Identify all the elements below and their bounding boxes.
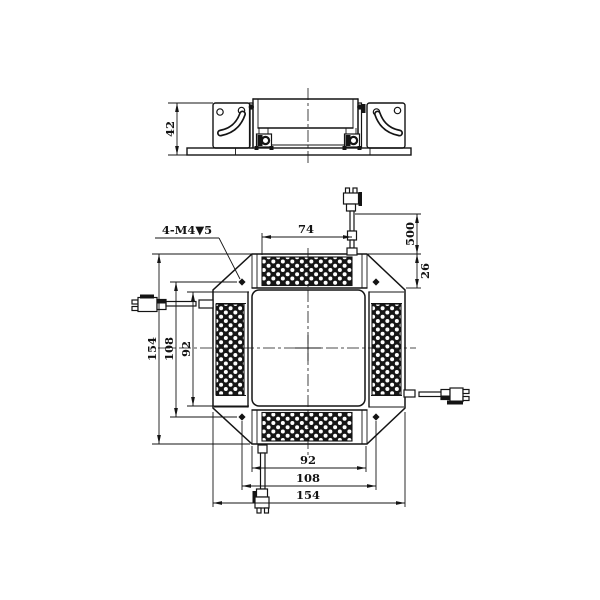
side-view-left-clip [255, 128, 274, 150]
screw-dot-left [249, 104, 254, 109]
cable-connector-top [344, 188, 363, 255]
dimension-top-width: 74 [262, 222, 352, 255]
dim-108-bottom-label: 108 [296, 471, 320, 485]
cable-connector-left [132, 295, 213, 312]
dim-154-bottom-label: 154 [296, 488, 320, 502]
dim-26-label: 26 [418, 263, 432, 279]
top-led-strip [252, 254, 367, 288]
dim-42-label: 42 [163, 121, 177, 137]
left-led-array [216, 304, 244, 395]
corner-screw-holes [238, 278, 379, 420]
side-view-left-bracket [213, 103, 250, 148]
dim-74-label: 74 [298, 222, 314, 236]
dimension-bottom-inner: 92 [252, 446, 366, 472]
dim-108-left-label: 108 [162, 337, 176, 361]
front-view: 4-M4▼5 74 500 26 [132, 188, 469, 513]
dim-154-left-label: 154 [145, 337, 159, 361]
right-led-array [372, 304, 401, 395]
side-view-base-plate [187, 148, 411, 155]
cable-connector-right [404, 388, 469, 405]
dim-500-label: 500 [403, 222, 417, 246]
left-led-strip [214, 292, 248, 407]
bottom-led-array [262, 413, 352, 442]
dimension-side-height: 42 [163, 103, 213, 155]
side-view: 42 [163, 88, 411, 165]
dim-92-bottom-label: 92 [300, 453, 316, 467]
side-view-right-bracket [367, 103, 405, 148]
dim-92-left-label: 92 [179, 341, 193, 357]
engineering-drawing-canvas: 42 [0, 0, 600, 600]
dimension-corner-offset: 26 [406, 254, 432, 288]
thread-callout-label: 4-M4▼5 [162, 223, 212, 237]
dimension-cable-length: 500 [355, 214, 421, 254]
thread-callout: 4-M4▼5 [155, 223, 240, 279]
led-panel-drawing: 42 [0, 0, 600, 600]
right-led-strip [369, 292, 404, 407]
bottom-led-strip [252, 410, 367, 444]
top-led-array [262, 257, 352, 286]
